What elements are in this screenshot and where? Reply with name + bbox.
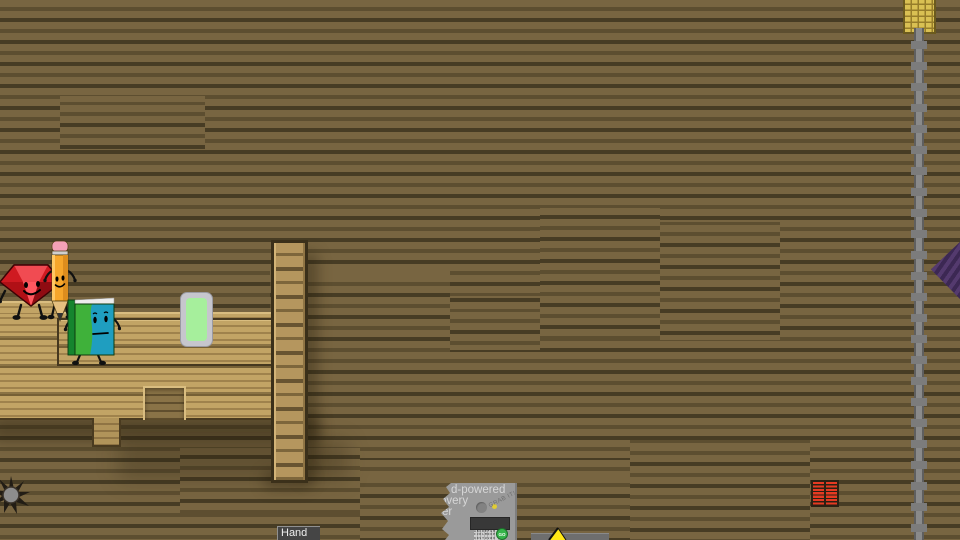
gray-ledge <box>531 533 609 540</box>
pennant-flag <box>931 242 960 299</box>
vent-icon <box>811 480 839 507</box>
platform-doorway-notch <box>143 386 186 420</box>
platform-pillar <box>271 240 308 483</box>
yellow-wedge <box>546 527 570 540</box>
vent-slats <box>813 482 824 505</box>
sun-icon <box>0 475 31 515</box>
respawn-pad <box>180 292 213 347</box>
machine-knob[interactable] <box>476 502 487 513</box>
plank-patch <box>660 220 780 340</box>
shadow <box>118 440 348 480</box>
platform-leg <box>92 418 121 447</box>
plank-patch <box>450 296 540 350</box>
respawn-pad-glow <box>186 298 207 341</box>
go-button[interactable]: GO <box>496 528 508 540</box>
plank-patch <box>630 440 810 540</box>
vent-slats <box>826 482 837 505</box>
book-character <box>63 293 121 365</box>
plank-patch <box>60 96 205 150</box>
sun-center <box>3 487 19 503</box>
pole-segments <box>911 28 927 540</box>
game-stage: d-powered overy er GRAB IT! ABCDEFGH IJK… <box>0 0 960 540</box>
book-body <box>68 298 114 355</box>
name-sign: Hand <box>277 526 320 540</box>
plank-patch <box>540 208 660 340</box>
